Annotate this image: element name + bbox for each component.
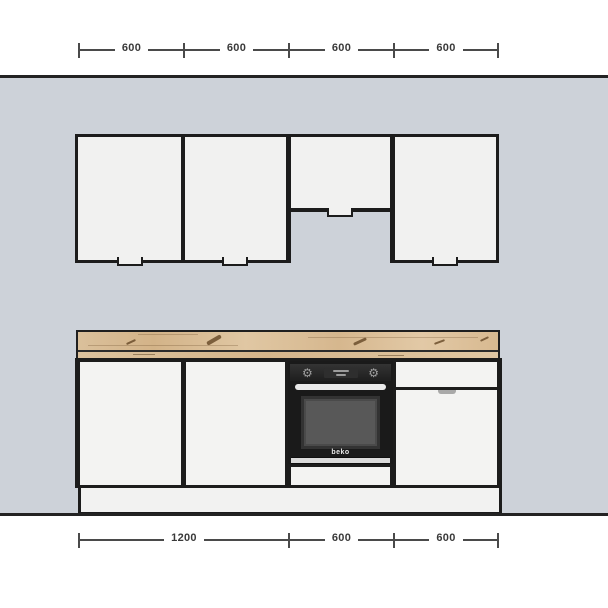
wall-cabinet-door-4[interactable]	[395, 137, 496, 260]
dim-line	[463, 49, 497, 51]
base-cabinet-run: ⚙ ⚙ beko	[75, 358, 502, 488]
dim-segment: 600	[183, 42, 288, 58]
dim-label: 600	[220, 42, 253, 54]
dim-line	[290, 49, 325, 51]
cabinet-handle	[432, 257, 458, 266]
plinth	[78, 485, 502, 515]
oven-control-panel: ⚙ ⚙	[290, 364, 391, 381]
dim-label: 600	[325, 42, 358, 54]
dim-segment: 600	[393, 42, 497, 58]
dimension-row-bottom: 1200 600 600	[78, 532, 497, 548]
cabinet-handle	[117, 257, 143, 266]
oven-door-handle	[295, 384, 386, 390]
dim-line	[185, 49, 220, 51]
dim-segment: 600	[288, 532, 393, 548]
dim-line	[395, 539, 429, 541]
dim-segment: 600	[288, 42, 393, 58]
dim-line	[290, 539, 325, 541]
dim-line	[204, 539, 288, 541]
dim-label: 1200	[164, 532, 204, 544]
base-cabinet-door-right[interactable]	[396, 390, 497, 485]
cabinet-handle	[222, 257, 248, 266]
wall-cabinet-door-3-short[interactable]	[291, 137, 390, 208]
dim-label: 600	[325, 532, 358, 544]
wall-cabinet-door-1[interactable]	[78, 137, 181, 260]
dimension-row-top: 600 600 600 600	[78, 42, 497, 58]
oven-door-window	[301, 396, 380, 449]
door-notch-handle	[438, 390, 456, 394]
base-cabinet-door-2[interactable]	[186, 362, 285, 485]
wall-cabinet-door-2[interactable]	[185, 137, 286, 260]
dim-line	[358, 539, 393, 541]
countertop[interactable]	[76, 330, 500, 360]
dim-segment: 600	[78, 42, 183, 58]
dim-line	[80, 49, 115, 51]
oven-display	[324, 368, 358, 378]
dim-line	[253, 49, 288, 51]
dim-line	[395, 49, 429, 51]
dim-segment: 1200	[78, 532, 288, 548]
dim-label: 600	[115, 42, 148, 54]
dim-line	[358, 49, 393, 51]
dim-segment: 600	[393, 532, 497, 548]
wall-cabinet-run	[75, 134, 499, 263]
dim-line	[148, 49, 183, 51]
oven-lower-trim	[291, 457, 390, 464]
oven-knob-left-icon: ⚙	[302, 367, 313, 379]
built-in-oven[interactable]: ⚙ ⚙ beko	[288, 361, 393, 464]
oven-brand-logo: beko	[288, 449, 393, 457]
dim-line	[80, 539, 164, 541]
base-cabinet-door-1[interactable]	[80, 362, 181, 485]
cabinet-handle	[327, 208, 353, 217]
hood-gap	[291, 212, 390, 263]
dim-line	[463, 539, 497, 541]
dim-tick	[497, 533, 499, 548]
dim-label: 600	[429, 532, 462, 544]
kitchen-elevation-canvas: 600 600 600 600	[0, 0, 608, 608]
dim-tick	[497, 43, 499, 58]
base-drawer-right[interactable]	[396, 362, 497, 387]
countertop-slab	[78, 332, 498, 350]
floor-line	[0, 513, 608, 516]
drawer-under-oven[interactable]	[291, 467, 390, 485]
oven-knob-right-icon: ⚙	[368, 367, 379, 379]
dim-label: 600	[429, 42, 462, 54]
